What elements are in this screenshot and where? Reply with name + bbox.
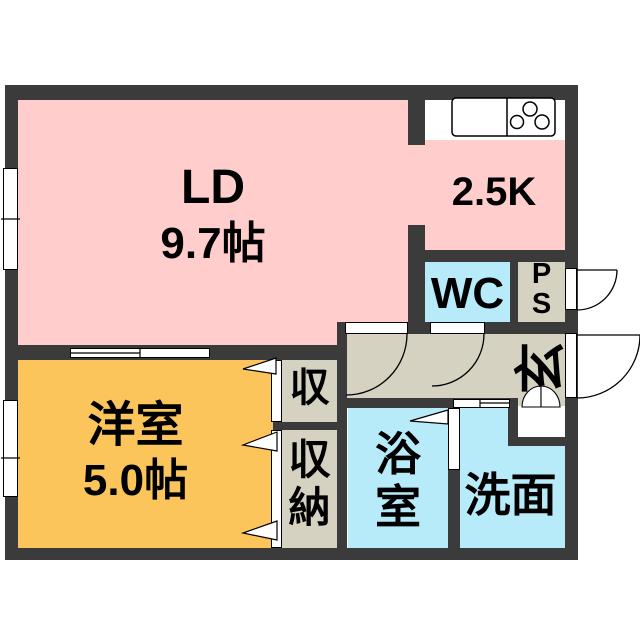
western-room-label: 洋室 [18, 402, 253, 450]
wall-wc-ps [510, 262, 518, 322]
ps-door [565, 268, 577, 310]
entrance-step [518, 406, 565, 437]
wc-door [430, 322, 485, 334]
wc-label: WC [425, 272, 510, 316]
door-swing-arc-icon [577, 335, 640, 398]
ld-room-label: LD [18, 164, 408, 212]
kitchen-counter-band [423, 93, 565, 140]
ld-room-size: 9.7帖 [18, 222, 408, 266]
wall-top [5, 85, 578, 100]
ld-window [3, 168, 18, 270]
bath-label: 浴 室 [348, 428, 448, 534]
genkan-label: 玄 [512, 338, 572, 398]
ld-hall-door [345, 322, 408, 334]
wall-bottom [5, 548, 578, 560]
western-room-size: 5.0帖 [18, 459, 253, 503]
floor-plan: LD 9.7帖 2.5K WC PS 玄 洋室 5.0帖 収 収 納 浴 室 洗… [0, 0, 640, 640]
washroom-label: 洗面 [448, 472, 573, 518]
ld-western-sliding-door [70, 348, 210, 358]
door-swing-arc-icon [577, 270, 617, 310]
ps-label: PS [518, 260, 565, 320]
wall-closet-divider [273, 422, 337, 430]
wall-wc-left [408, 262, 425, 322]
closet-lower-label: 収 納 [282, 436, 337, 533]
closet-upper-label: 収 [282, 368, 337, 408]
washroom-sliding-door [453, 399, 510, 408]
wall-ld-kitchen-lower [408, 225, 425, 250]
wall-mid-vertical [337, 322, 347, 548]
wall-step-bottom [508, 437, 565, 446]
wall-ld-kitchen-upper [408, 100, 425, 145]
closet-upper-door [271, 360, 282, 422]
closet-lower-door [271, 430, 282, 548]
bath-door [448, 408, 460, 470]
western-room [18, 360, 273, 548]
western-room-window [3, 400, 18, 497]
kitchen-size-label: 2.5K [423, 172, 565, 212]
